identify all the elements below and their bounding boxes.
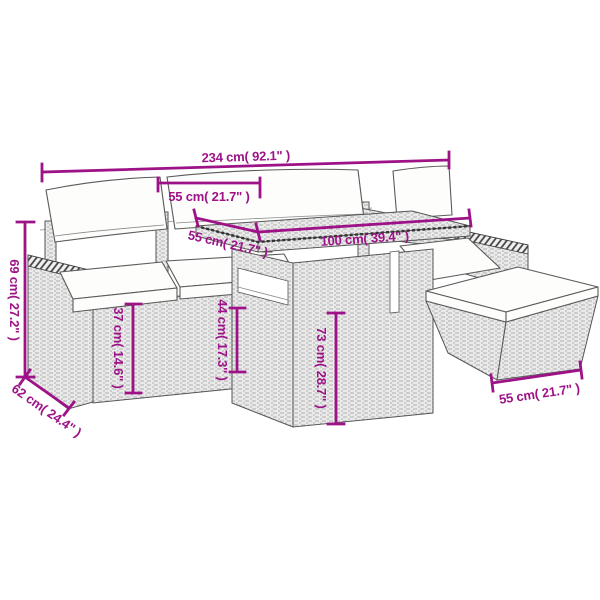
dimension-label-armrest-height: 44 cm( 17.3" ) xyxy=(215,299,230,380)
dimension-label-ottoman-width: 55 cm( 21.7" ) xyxy=(498,380,581,407)
dimension-label-total-width: 234 cm( 92.1" ) xyxy=(201,148,290,166)
dimension-seat-width: 55 cm( 21.7" ) xyxy=(158,178,260,204)
dimension-label-back-height: 69 cm( 27.2" ) xyxy=(7,259,22,340)
diagram-canvas: 234 cm( 92.1" ) 55 cm( 21.7" ) 55 cm( 21… xyxy=(0,0,600,600)
table-slat-gap xyxy=(390,251,399,313)
back-pillow-left xyxy=(46,177,167,242)
back-pillow-right xyxy=(393,166,452,219)
table-front-face xyxy=(293,249,433,427)
dimension-label-seat-width: 55 cm( 21.7" ) xyxy=(168,189,249,204)
dimension-label-table-height: 73 cm( 28.7" ) xyxy=(314,327,329,408)
dimension-label-seat-height: 37 cm( 14.6" ) xyxy=(111,307,126,388)
product-dimension-diagram: 234 cm( 92.1" ) 55 cm( 21.7" ) 55 cm( 21… xyxy=(0,0,600,600)
